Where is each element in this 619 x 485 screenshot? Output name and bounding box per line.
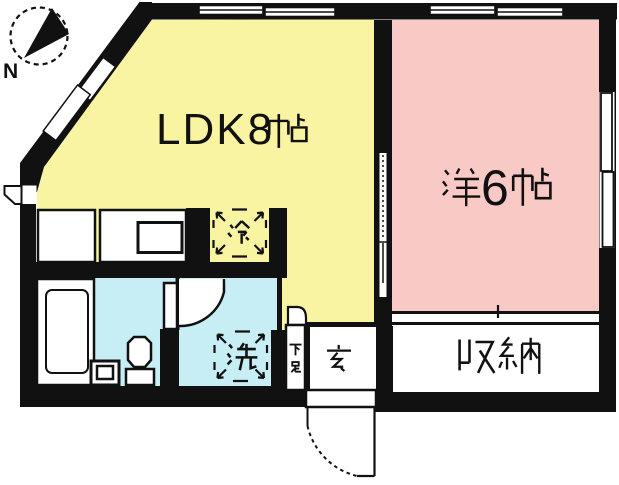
svg-text:6: 6 — [481, 160, 509, 216]
svg-text:LDK8: LDK8 — [156, 105, 274, 154]
svg-text:N: N — [3, 60, 18, 83]
